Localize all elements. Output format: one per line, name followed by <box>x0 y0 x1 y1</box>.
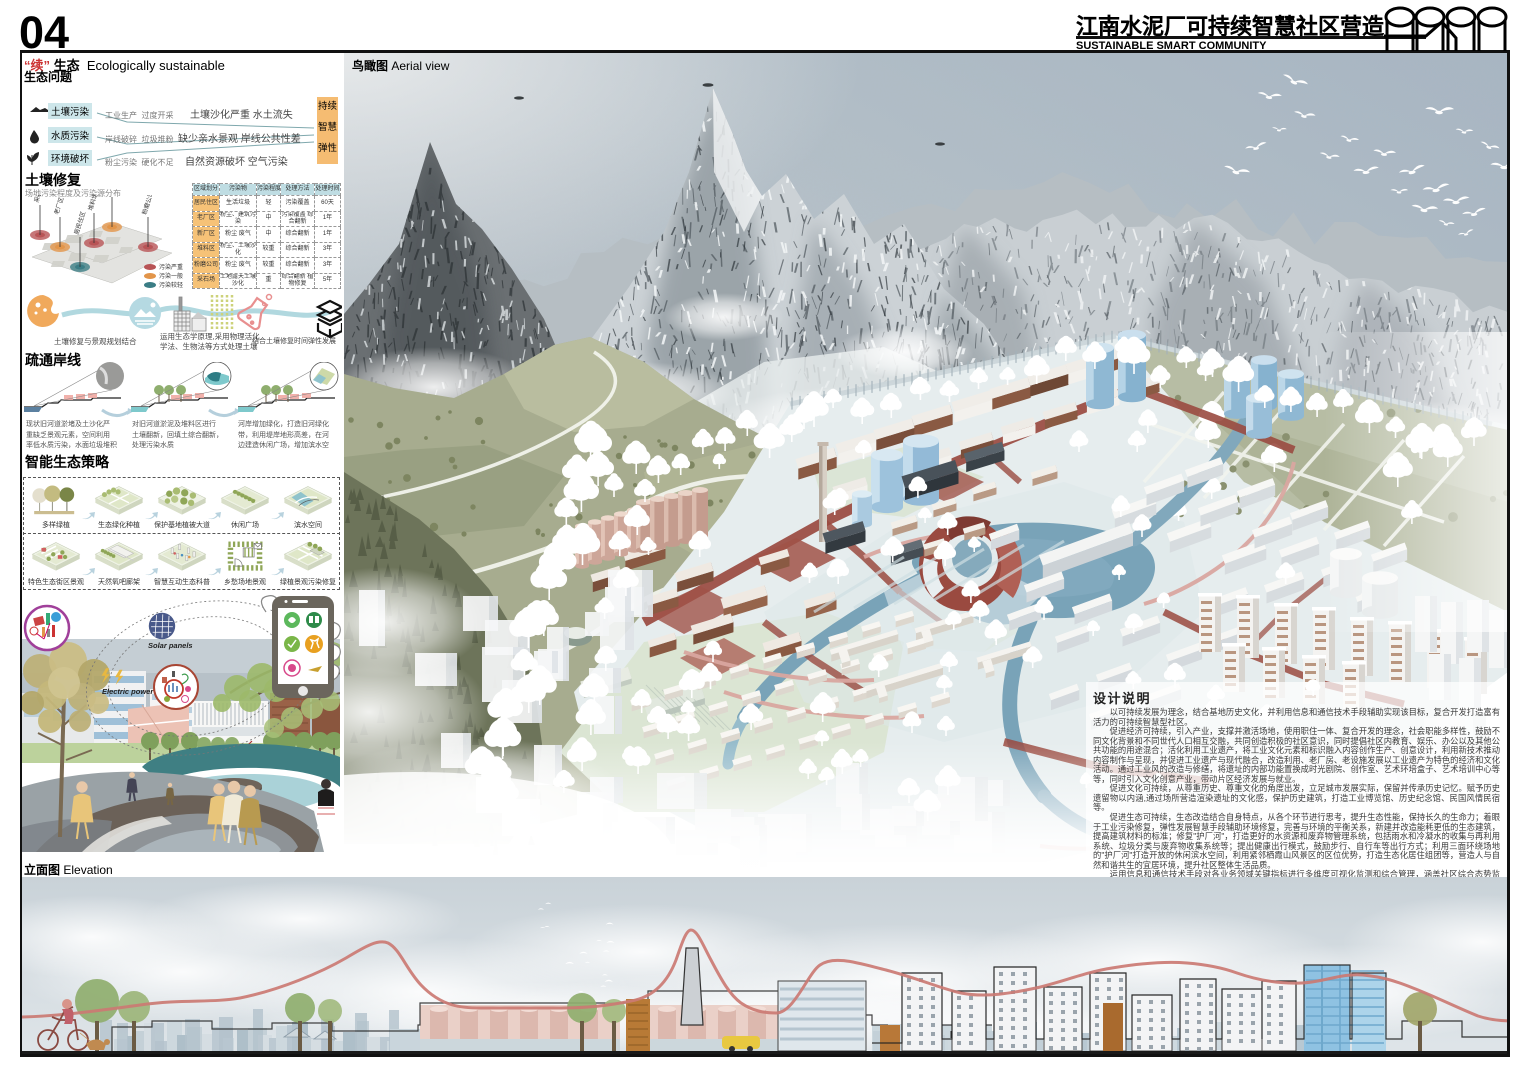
svg-text:污染较轻: 污染较轻 <box>159 281 183 289</box>
svg-text:污染严重: 污染严重 <box>159 263 183 271</box>
svg-text:新厂区: 新厂区 <box>104 195 117 196</box>
svg-text:堆料场: 堆料场 <box>86 195 99 212</box>
svg-text:老厂区: 老厂区 <box>52 196 65 216</box>
svg-text:粉磨公司: 粉磨公司 <box>140 195 155 216</box>
svg-text:居民住区: 居民住区 <box>72 210 87 235</box>
svg-text:污染一般: 污染一般 <box>159 272 183 280</box>
svg-text:采石场: 采石场 <box>32 195 45 204</box>
